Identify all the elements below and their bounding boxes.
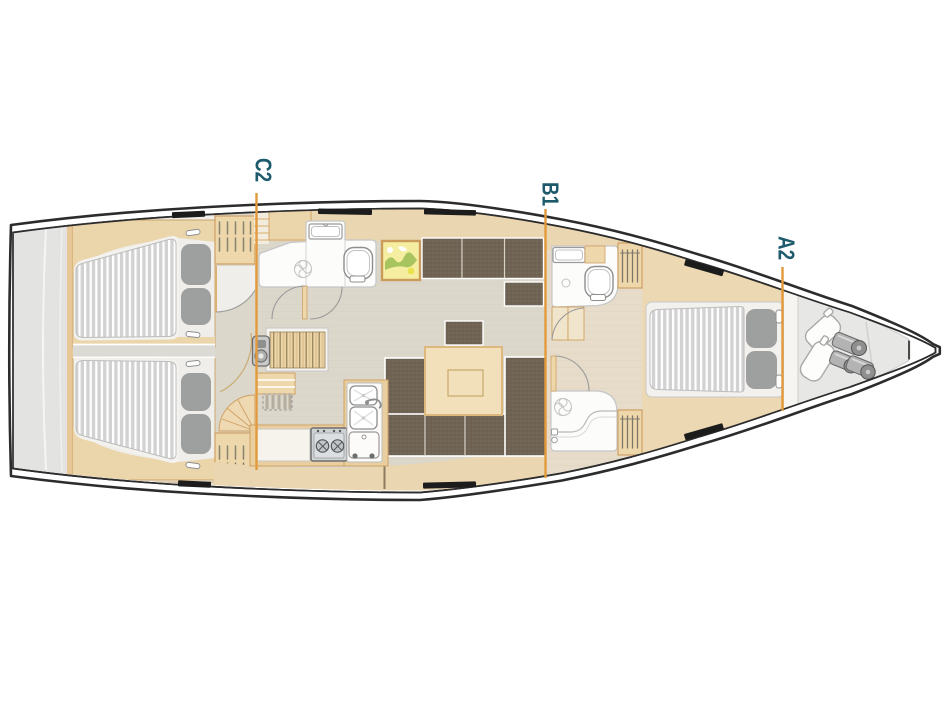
svg-text:C2: C2 [250, 158, 275, 182]
svg-text:A2: A2 [773, 236, 798, 260]
svg-text:B1: B1 [537, 182, 562, 206]
